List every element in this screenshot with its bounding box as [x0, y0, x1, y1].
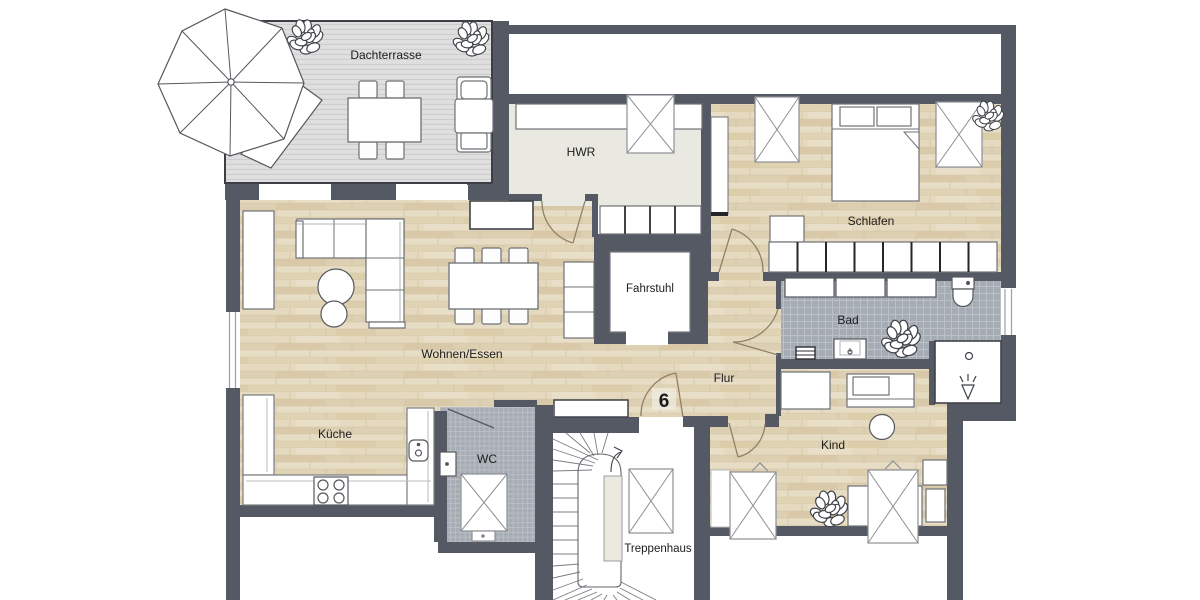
svg-text:Bad: Bad	[837, 313, 858, 327]
svg-text:Treppenhaus: Treppenhaus	[624, 543, 692, 555]
svg-text:HWR: HWR	[567, 145, 596, 159]
svg-text:Fahrstuhl: Fahrstuhl	[626, 283, 674, 295]
svg-text:Wohnen/Essen: Wohnen/Essen	[421, 347, 502, 361]
svg-text:Dachterrasse: Dachterrasse	[350, 48, 422, 62]
svg-text:6: 6	[659, 391, 670, 412]
svg-text:WC: WC	[477, 452, 497, 466]
svg-text:Flur: Flur	[714, 371, 735, 385]
svg-text:Kind: Kind	[821, 438, 845, 452]
svg-text:Schlafen: Schlafen	[848, 214, 895, 228]
svg-text:Küche: Küche	[318, 427, 352, 441]
